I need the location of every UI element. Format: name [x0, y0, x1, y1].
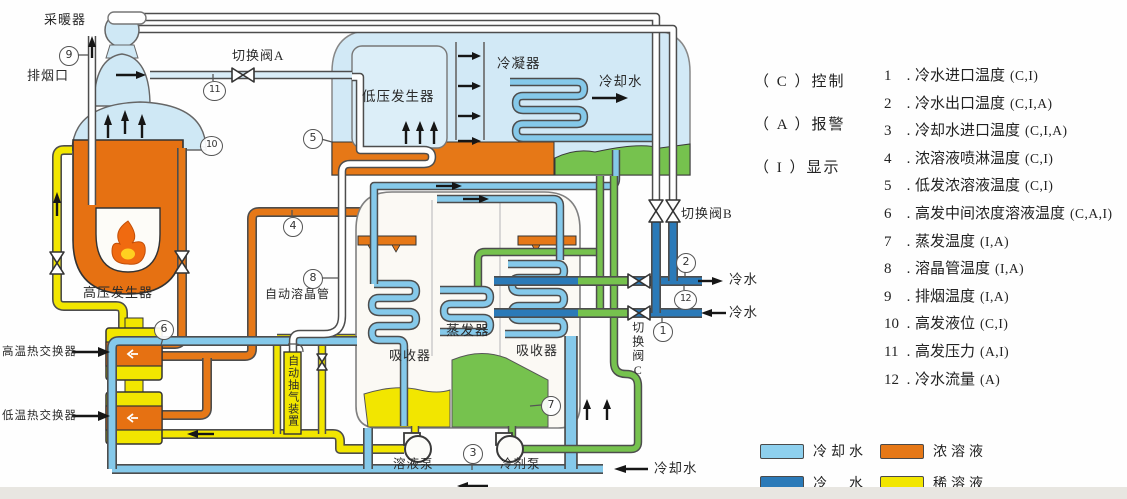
point-label: 低发浓溶液温度: [915, 178, 1020, 194]
point-flags: (C,I): [1025, 178, 1053, 193]
valve-c-label: 切换阀C: [630, 321, 644, 379]
point-label: 冷水出口温度: [915, 96, 1005, 112]
point-number: 2: [884, 96, 902, 113]
lp-generator-label: 低压发生器: [362, 89, 435, 105]
switch-valve-b2-icon: [666, 200, 680, 222]
point-flags: (I,A): [980, 289, 1009, 304]
hp-generator-label: 高压发生器: [83, 286, 153, 301]
monitor-point: 11.高发压力(A,I): [884, 340, 1113, 368]
point-label: 溶晶管温度: [915, 261, 990, 277]
monitor-point: 4.浓溶液喷淋温度(C,I): [884, 147, 1113, 175]
sensor-badge-11: 11: [203, 81, 226, 101]
ht-exchanger-label: 高温热交换器: [2, 346, 77, 359]
point-label: 冷水进口温度: [915, 68, 1005, 84]
point-label: 高发液位: [915, 316, 975, 332]
point-number: 1: [884, 68, 902, 85]
legend-label: 浓溶液: [933, 441, 987, 461]
condenser-label: 冷凝器: [497, 56, 541, 72]
point-number: 10: [884, 316, 902, 333]
monitor-point-list: 1.冷水进口温度(C,I) 2.冷水出口温度(C,I,A) 3.冷却水进口温度(…: [884, 64, 1113, 395]
sensor-badge-9: 9: [59, 46, 79, 66]
signal-code: （ I ）: [754, 160, 807, 176]
point-number: 8: [884, 261, 902, 278]
sensor-badge-7: 7: [541, 396, 561, 416]
point-number: 7: [884, 234, 902, 251]
sensor-badge-12: 12: [674, 290, 697, 310]
purge-device-label: 自动抽气装置: [286, 355, 299, 427]
legend-item-cooling-water: 冷却水: [760, 441, 880, 461]
signal-label: 控制: [812, 74, 846, 90]
generator-bell: [94, 54, 150, 106]
flame-core: [121, 249, 135, 260]
sensor-badge-2: 2: [676, 253, 696, 273]
monitor-point: 9.排烟温度(I,A): [884, 285, 1113, 313]
legend-item-strong-solution: 浓溶液: [880, 441, 987, 461]
monitor-point: 6.高发中间浓度溶液温度(C,A,I): [884, 202, 1113, 230]
switch-valve-b1-icon: [649, 200, 663, 222]
switch-valve-a-icon: [232, 68, 254, 82]
point-label: 高发中间浓度溶液温度: [915, 206, 1065, 222]
signal-code: （ C ）: [754, 74, 812, 90]
sensor-badge-1: 1: [653, 322, 673, 342]
legend-label: 冷却水: [813, 441, 867, 461]
absorber-right-label: 吸收器: [516, 344, 558, 359]
point-flags: (A): [980, 372, 1000, 387]
signal-label: 报警: [812, 117, 846, 133]
valve-a-label: 切换阀A: [232, 49, 284, 64]
point-label: 冷水流量: [915, 372, 975, 388]
heater-label: 采暖器: [44, 13, 86, 28]
point-label: 浓溶液喷淋温度: [915, 151, 1020, 167]
solution-pump-label: 溶液泵: [393, 457, 434, 471]
monitor-point: 2.冷水出口温度(C,I,A): [884, 92, 1113, 120]
monitor-point: 1.冷水进口温度(C,I): [884, 64, 1113, 92]
sensor-badge-5: 5: [303, 129, 323, 149]
signal-key-row: （ A ）报警: [754, 113, 846, 156]
point-number: 11: [884, 344, 902, 361]
absorption-chiller-diagram: 采暖器 排烟口 切换阀A 高压发生器 高温热交换器 低温热交换器 自动溶晶管 自…: [0, 0, 1127, 499]
point-number: 3: [884, 123, 902, 140]
monitor-point: 7.蒸发温度(I,A): [884, 230, 1113, 258]
cooling-water-in-label: 冷却水: [654, 461, 698, 477]
sensor-badge-4: 4: [283, 217, 303, 237]
point-flags: (C,I): [980, 316, 1008, 331]
absorber-left-label: 吸收器: [389, 349, 431, 364]
bottom-strip: [0, 487, 1127, 499]
chilled-water-out-label: 冷水: [729, 272, 758, 288]
point-flags: (I,A): [980, 234, 1009, 249]
sensor-badge-3: 3: [463, 444, 483, 464]
strong-solution-swatch: [880, 444, 924, 459]
sensor-badge-8: 8: [303, 269, 323, 289]
legend: 冷却水 浓溶液 冷 水 稀溶液: [760, 441, 987, 493]
cooling-water-swatch: [760, 444, 804, 459]
exhaust-label: 排烟口: [27, 69, 69, 84]
point-label: 高发压力: [915, 344, 975, 360]
point-number: 5: [884, 178, 902, 195]
signal-code: （ A ）: [754, 117, 812, 133]
heater-pipe-turn: [108, 12, 146, 24]
point-flags: (C,I): [1025, 151, 1053, 166]
monitor-point: 10.高发液位(C,I): [884, 312, 1113, 340]
cooling-water-out-label: 冷却水: [599, 74, 643, 90]
monitor-point: 12.冷水流量(A): [884, 368, 1113, 396]
point-number: 9: [884, 289, 902, 306]
crystal-tube-label: 自动溶晶管: [265, 288, 330, 302]
point-number: 6: [884, 206, 902, 223]
signal-key-row: （ I ）显示: [754, 156, 846, 199]
signal-key: （ C ）控制 （ A ）报警 （ I ）显示: [754, 70, 846, 199]
signal-key-row: （ C ）控制: [754, 70, 846, 113]
point-flags: (C,I,A): [1010, 96, 1053, 111]
point-flags: (C,I,A): [1025, 123, 1068, 138]
valve-b-label: 切换阀B: [681, 207, 733, 222]
monitor-point: 8.溶晶管温度(I,A): [884, 257, 1113, 285]
point-flags: (A,I): [980, 344, 1009, 359]
sensor-badge-6: 6: [154, 320, 174, 340]
lt-exchanger-outlet-pipe: [160, 358, 207, 415]
lt-exchanger-label: 低温热交换器: [2, 410, 77, 423]
refrigerant-pump-label: 冷剂泵: [500, 457, 541, 471]
point-flags: (C,I): [1010, 68, 1038, 83]
evaporator-label: 蒸发器: [446, 323, 490, 339]
point-flags: (C,A,I): [1070, 206, 1113, 221]
point-label: 冷却水进口温度: [915, 123, 1020, 139]
point-label: 排烟温度: [915, 289, 975, 305]
sensor-badge-10: 10: [200, 136, 223, 156]
point-flags: (I,A): [995, 261, 1024, 276]
point-label: 蒸发温度: [915, 234, 975, 250]
chilled-water-in-label: 冷水: [729, 305, 758, 321]
point-number: 4: [884, 151, 902, 168]
signal-label: 显示: [807, 160, 841, 176]
monitor-point: 3.冷却水进口温度(C,I,A): [884, 119, 1113, 147]
monitor-point: 5.低发浓溶液温度(C,I): [884, 174, 1113, 202]
point-number: 12: [884, 372, 902, 389]
